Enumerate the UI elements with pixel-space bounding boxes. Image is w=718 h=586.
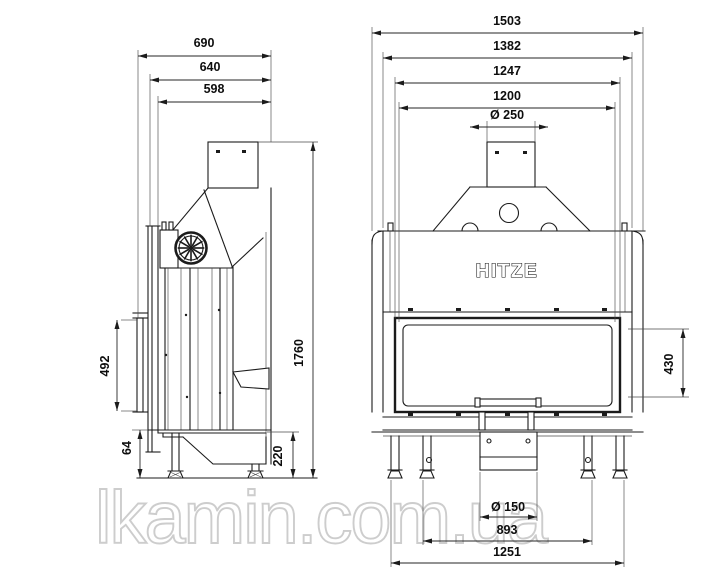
dim-width-glass: 1200: [493, 89, 521, 103]
dim-legs-span-inner: 893: [497, 523, 518, 537]
dim-flue-diameter: Ø 250: [490, 108, 524, 122]
watermark: lkamin.com.ua: [95, 476, 549, 559]
front-hood: [433, 187, 590, 231]
dim-depth-total: 690: [194, 36, 215, 50]
dim-air-inlet-diameter: Ø 150: [491, 500, 525, 514]
dim-height-total: 1760: [292, 339, 306, 367]
front-central-box: [480, 432, 537, 470]
dim-width-total: 1503: [493, 14, 521, 28]
side-view-geometry: [133, 142, 317, 478]
dim-base-height: 220: [271, 446, 285, 467]
dim-glass-height-side: 492: [98, 356, 112, 377]
front-door: [395, 318, 620, 412]
dim-glass-height-front: 430: [662, 354, 676, 375]
drawing-canvas: lkamin.com.ua: [0, 0, 718, 586]
fan-icon: [176, 233, 207, 264]
dim-width-frame: 1247: [493, 64, 521, 78]
side-door-glass: [133, 313, 147, 412]
side-chimney-outline: [208, 142, 258, 188]
watermark-text: lkamin.com.ua: [95, 476, 549, 559]
side-legs: [168, 433, 263, 478]
front-chimney-outline: [487, 142, 535, 187]
fireplace-technical-drawing: lkamin.com.ua: [0, 0, 718, 586]
side-view: 690 640 598 1760 492 64: [98, 36, 318, 478]
dim-foot-clearance: 64: [120, 441, 134, 455]
dim-depth-inner: 598: [204, 82, 225, 96]
dim-width-outer: 1382: [493, 39, 521, 53]
hitze-logo: HITZE: [476, 261, 538, 282]
front-view-geometry: HITZE: [372, 142, 645, 478]
side-view-dimensions: 690 640 598 1760 492 64: [98, 36, 318, 478]
side-hood-slope: [172, 188, 208, 231]
dim-depth-mid: 640: [200, 60, 221, 74]
dim-legs-span-outer: 1251: [493, 545, 521, 559]
side-damper-handle: [233, 368, 269, 389]
